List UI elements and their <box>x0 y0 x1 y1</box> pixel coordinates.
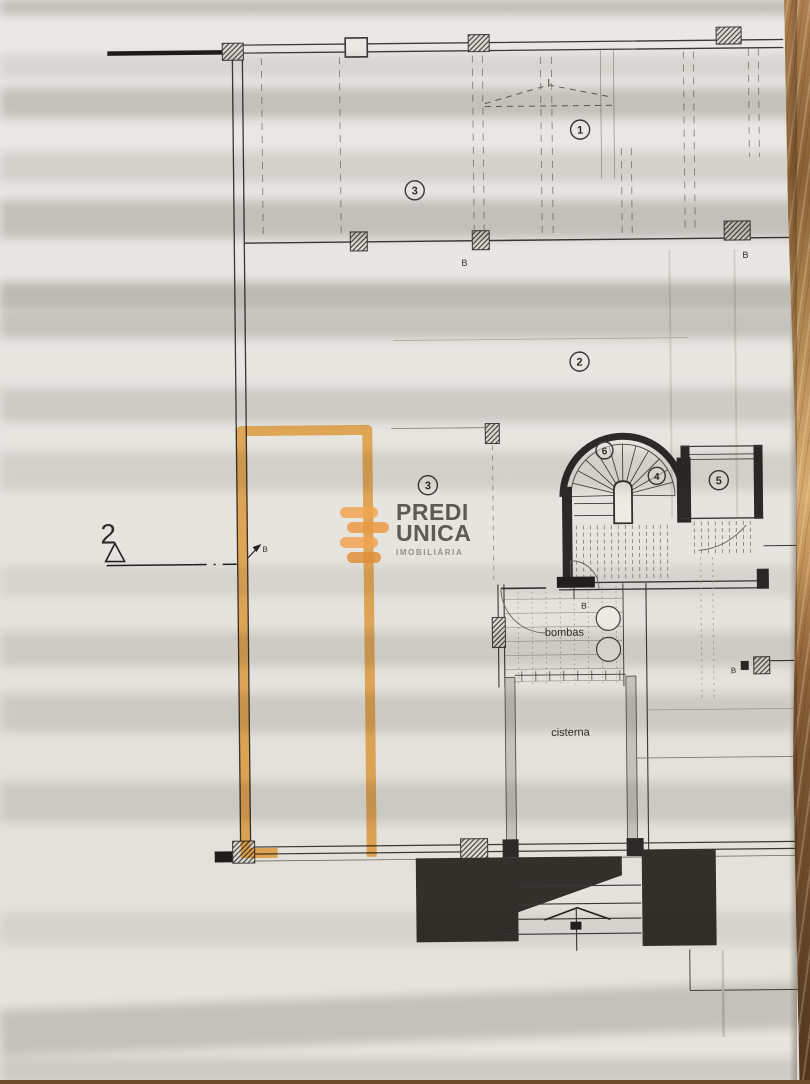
agency-watermark-logo: PREDI UNICA IMOBILIÁRIA <box>340 502 471 563</box>
pencil-line <box>393 337 688 340</box>
column <box>468 35 489 52</box>
column <box>485 423 499 443</box>
beam-label: B <box>461 258 467 268</box>
dashed-gable <box>485 84 613 106</box>
zone-number: 5 <box>716 475 722 487</box>
scanned-floorplan-sheet: B B <box>0 0 810 1080</box>
dashed-grid-lines <box>261 49 760 238</box>
entry-ramp <box>416 848 801 1040</box>
logo-word-2: UNICA <box>396 523 471 544</box>
elevator-room <box>680 444 802 553</box>
zone-number: 3 <box>425 480 431 492</box>
cistern-room: cisterna <box>505 668 799 851</box>
stair-newel <box>614 481 632 523</box>
top-wall <box>242 39 783 53</box>
column <box>345 38 367 57</box>
column <box>716 27 741 44</box>
zone-number: 4 <box>654 472 660 483</box>
highlighted-unit-outline <box>241 430 371 858</box>
stair-wall <box>562 487 573 584</box>
dashed-line <box>492 446 493 580</box>
room-label: bombas <box>545 627 585 639</box>
beam-label: B <box>731 666 736 675</box>
logo-bars-icon <box>340 502 389 563</box>
arrow-icon <box>252 544 261 552</box>
faint-dashes <box>701 557 714 697</box>
zone-numbers: 1 3 2 3 6 4 5 <box>405 119 729 495</box>
column <box>222 43 243 60</box>
electrical-board <box>557 576 595 587</box>
beam-label: B <box>742 250 748 260</box>
logo-tagline: IMOBILIÁRIA <box>396 548 471 557</box>
zone-number: 6 <box>602 446 608 457</box>
faint-line <box>391 428 485 429</box>
zone-number: 2 <box>576 357 582 369</box>
room-label: cisterna <box>551 727 591 739</box>
solid-fill-right <box>642 849 717 946</box>
beam-label: B <box>581 601 587 611</box>
zone-number: 1 <box>577 125 583 137</box>
faint-wall-lines <box>600 50 614 178</box>
pump <box>596 637 620 661</box>
paper-edge-shadow <box>789 0 797 1080</box>
stair-treads <box>576 525 668 579</box>
column <box>492 617 505 647</box>
column <box>350 232 367 251</box>
pump <box>596 606 620 630</box>
column <box>472 231 489 250</box>
smudge-line <box>723 950 724 1037</box>
solid-fill-left <box>416 856 623 942</box>
door-swing <box>501 588 546 633</box>
zone-number: 3 <box>412 185 418 197</box>
column <box>724 221 750 240</box>
top-left-cut-wall <box>107 52 233 53</box>
beam-label: B <box>262 545 267 554</box>
mid-wall <box>244 237 789 243</box>
